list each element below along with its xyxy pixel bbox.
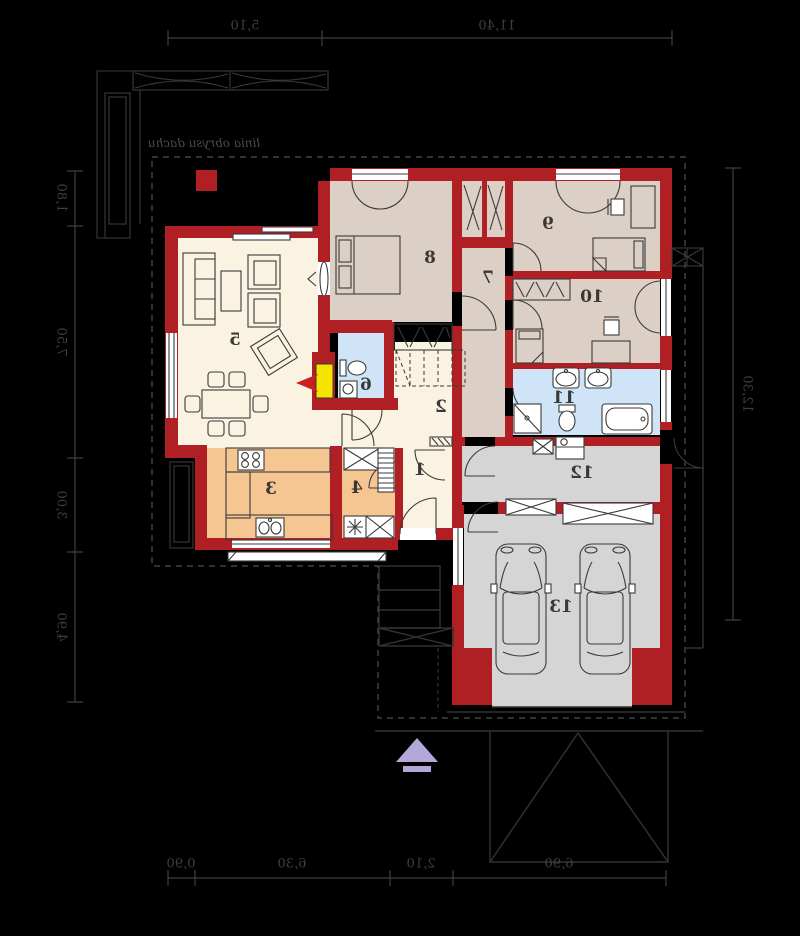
room-label-8: 8 [424,248,436,268]
room-label-11: 11 [552,388,576,408]
floor-plan-drawing [0,0,800,936]
freezer-snowflake [347,519,363,535]
dim-left [67,171,83,702]
porch-steps [379,566,453,712]
shower [514,404,541,433]
dim-top-1: 5,10 [231,19,260,34]
washer [340,381,357,398]
window-bathroom11 [661,370,671,422]
armchair [248,255,280,289]
dim-bottom [168,870,666,886]
washbasin [553,368,579,388]
stove [238,450,264,470]
room-label-12: 12 [570,463,594,483]
dim-bottom-3: 2,10 [407,857,436,872]
room-label-13: 13 [549,597,573,617]
sofa [183,253,215,325]
room-label-2: 2 [435,397,447,417]
room-9-bedroom-area [513,181,660,271]
dim-left-4: 4,90 [54,613,69,642]
room-label-6: 6 [360,375,372,395]
chimney [196,170,217,191]
room-label-5: 5 [229,330,241,350]
room-label-3: 3 [265,479,277,499]
floor-plan-page: linia obrysu dachu 5,10 11,40 1,80 7,50 … [0,0,800,936]
room-label-4: 4 [351,478,363,498]
coffee-table [221,271,241,311]
dim-top-2: 11,40 [478,19,515,34]
dim-left-3: 3,00 [54,491,69,520]
window-kitchen-west [170,462,193,548]
dim-bottom-1: 0,90 [167,857,196,872]
roof-outline-label: linia obrysu dachu [148,136,260,150]
toilet [559,405,575,431]
dim-bottom-2: 6,30 [278,857,307,872]
room-label-1: 1 [414,460,426,480]
dim-right-1: 12,30 [740,375,755,412]
dim-left-2: 7,50 [54,328,69,357]
room-label-10: 10 [580,287,604,307]
window-living-west [166,333,177,418]
living-passage-area [330,410,395,448]
toilet [340,360,366,376]
washbasin [585,368,611,388]
north-arrow [396,738,438,772]
armchair [248,293,280,327]
bathtub [602,404,652,434]
pergola-trellis [97,71,328,238]
room-label-9: 9 [542,214,554,234]
room-label-7: 7 [482,268,494,288]
dim-left-1: 1,80 [54,184,69,213]
window-garage-west [453,528,463,585]
dim-bottom-4: 6,90 [545,857,574,872]
exterior-window-box [672,248,703,266]
door-utility-exterior [674,438,704,468]
sink [256,518,284,537]
garage-door-apron [492,691,632,707]
